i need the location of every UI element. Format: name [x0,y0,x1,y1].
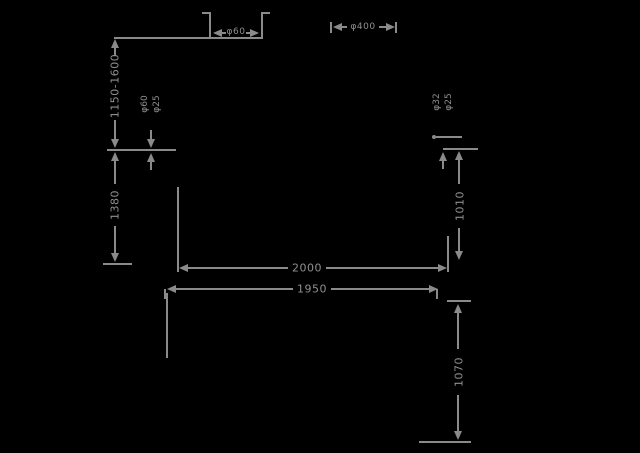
right-extension-line [447,236,449,272]
arrowhead-up-icon [111,152,119,161]
base-depth-label: 1070 [453,357,466,387]
overall-width-label: 2000 [292,262,322,275]
right-annotation-line2: φ25 [443,93,455,110]
left-joint-line [107,149,176,151]
arrowhead-left-icon [179,264,188,272]
left-annotation-line2: φ25 [151,95,163,112]
height-range-label: 1150-1600 [109,54,122,118]
dimension-drawing: φ60 φ400 1150-1600 φ60 φ25 1380 φ32 φ25 [0,0,640,453]
dim-stem [220,32,226,34]
arrowhead-down-icon [454,431,462,440]
dim-end-drop [436,289,438,299]
arrowhead-up-icon [454,304,462,313]
depth-bottom-tick [419,441,471,443]
depth-top-tick [447,300,471,302]
right-annotation-line1: φ32 [431,93,443,110]
base-left-edge [166,293,168,358]
left-lower-height-label: 1380 [109,190,122,220]
leader-line [436,136,462,138]
right-joint-line [443,148,478,150]
bracket-left-wall [209,13,211,38]
arrowhead-up-icon [111,39,119,48]
arrowhead-left-icon [167,285,176,293]
arrowhead-down-icon [111,253,119,262]
dim-stem [326,267,439,269]
dim-tick [330,22,332,33]
arrowhead-up-icon [147,153,155,162]
dim-tick [395,22,397,33]
right-middle-height-label: 1010 [454,191,467,221]
arrowhead-down-icon [111,139,119,148]
leader-stem [150,162,152,170]
dim-stem [331,288,429,290]
dim-stem [114,161,116,184]
dim-stem [458,160,460,184]
dim-stem [188,267,288,269]
arrowhead-up-icon [439,152,447,161]
dim-stem [457,395,459,432]
left-annotation-line1: φ60 [139,95,151,112]
leader-stem [442,161,444,169]
arrowhead-right-icon [438,264,447,272]
arrowhead-right-icon [386,23,395,31]
dim-stem [379,26,386,28]
arrowhead-right-icon [250,29,259,37]
left-annotation: φ60 φ25 [139,95,163,112]
bracket-right-wall [261,13,263,38]
arrowhead-up-icon [455,151,463,160]
right-annotation: φ32 φ25 [431,93,455,110]
dim-stem [114,226,116,254]
top-right-diameter-label: φ400 [350,22,375,32]
dim-stem [457,313,459,349]
dim-stem [114,120,116,139]
top-detail-diameter-label: φ60 [227,27,246,37]
arrowhead-down-icon [147,139,155,148]
left-extension-line [177,187,179,272]
ground-tick-line [103,263,132,265]
dim-stem [458,228,460,252]
arrowhead-down-icon [455,251,463,260]
dim-stem [176,288,293,290]
dim-stem [341,26,347,28]
top-reference-line [114,37,263,39]
base-width-label: 1950 [297,283,327,296]
